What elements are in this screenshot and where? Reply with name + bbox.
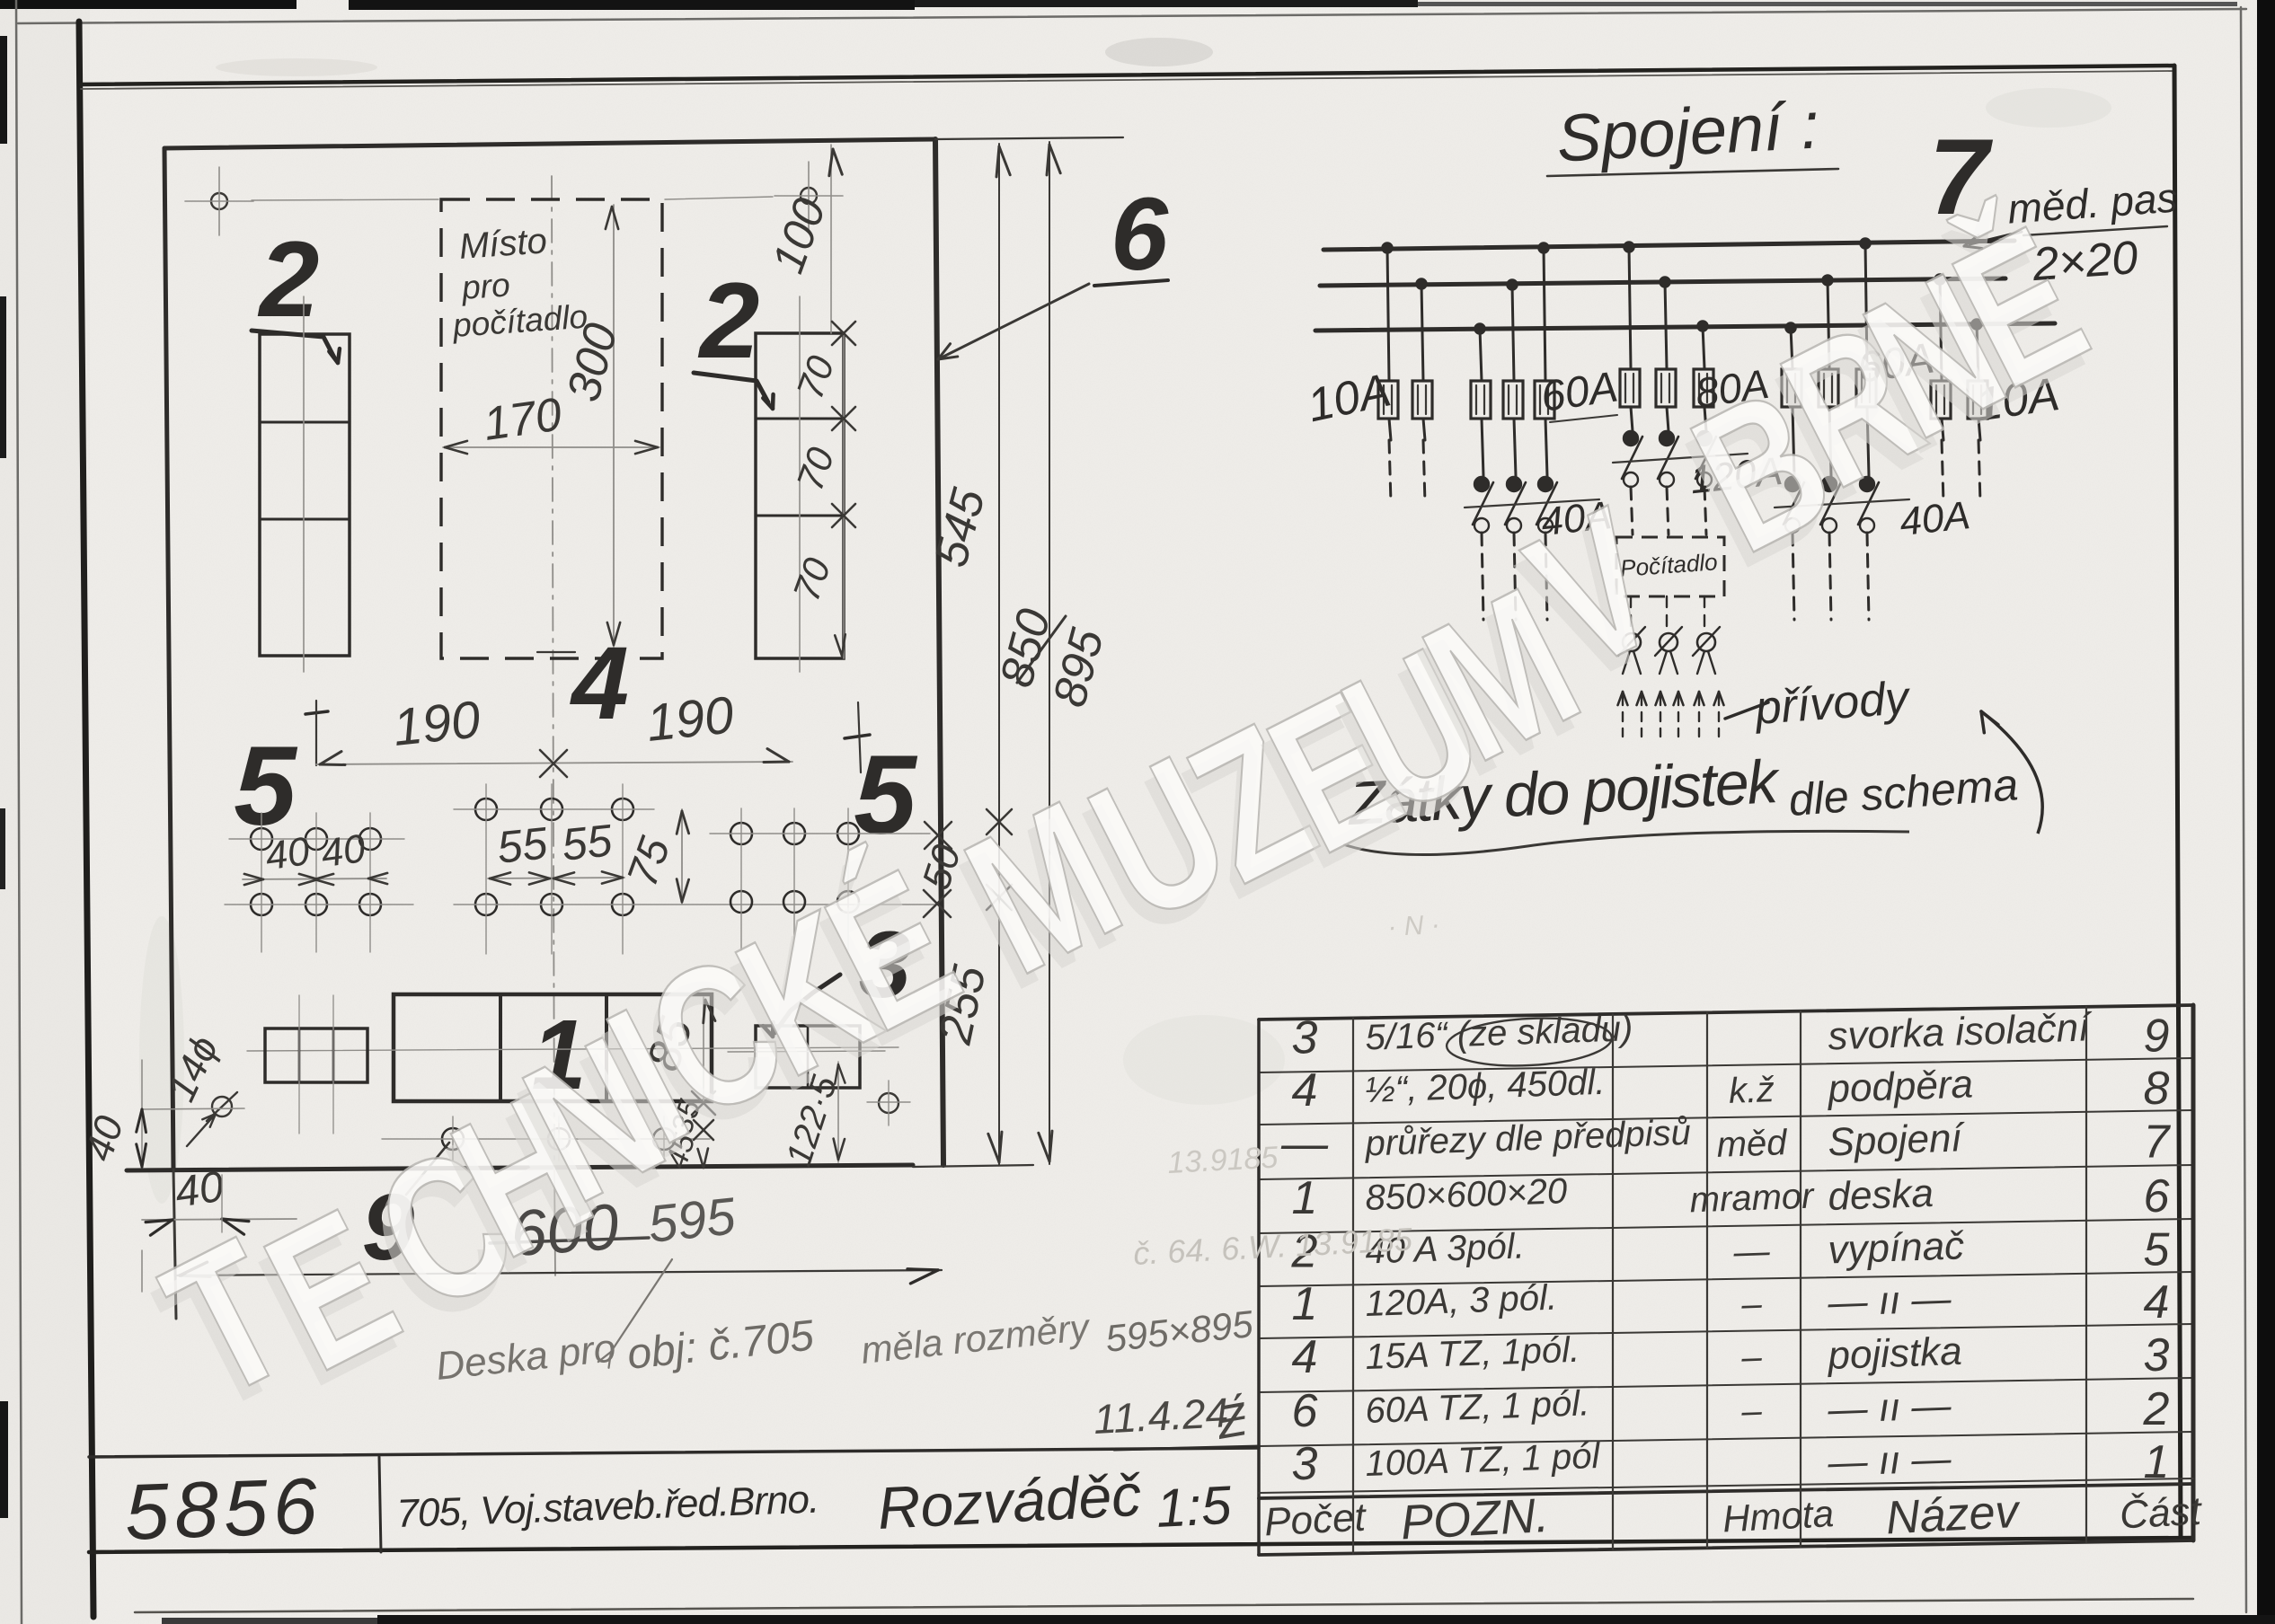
svg-text:850×600×20: 850×600×20 xyxy=(1365,1171,1568,1218)
svg-text:3: 3 xyxy=(1292,1012,1318,1064)
svg-text:170: 170 xyxy=(481,388,565,451)
svg-text:6: 6 xyxy=(1292,1385,1318,1437)
svg-text:15A TZ, 1pól.: 15A TZ, 1pól. xyxy=(1365,1330,1580,1377)
svg-text:—: — xyxy=(1732,1231,1772,1272)
svg-text:55: 55 xyxy=(560,815,615,870)
svg-text:2: 2 xyxy=(698,260,760,381)
svg-text:1: 1 xyxy=(2144,1436,2170,1488)
svg-text:–: – xyxy=(1740,1391,1764,1432)
svg-text:— ıı —: — ıı — xyxy=(1827,1436,1953,1485)
svg-text:–: – xyxy=(1740,1284,1764,1325)
svg-text:4: 4 xyxy=(1292,1331,1318,1383)
svg-text:—: — xyxy=(1280,1118,1329,1170)
svg-text:pojistka: pojistka xyxy=(1826,1329,1963,1378)
svg-text:svorka isolační: svorka isolační xyxy=(1828,1005,2094,1058)
svg-text:100A TZ, 1 pól: 100A TZ, 1 pól xyxy=(1365,1436,1601,1484)
svg-text:k.ž: k.ž xyxy=(1728,1070,1775,1111)
svg-text:Počet: Počet xyxy=(1263,1496,1368,1545)
svg-text:120A, 3 pól.: 120A, 3 pól. xyxy=(1365,1278,1558,1324)
svg-text:deska: deska xyxy=(1828,1171,1934,1219)
svg-text:8: 8 xyxy=(2144,1063,2170,1115)
svg-text:— ıı —: — ıı — xyxy=(1827,1383,1953,1432)
svg-text:1: 1 xyxy=(1292,1172,1318,1224)
svg-text:POZN.: POZN. xyxy=(1399,1488,1550,1550)
svg-text:měd: měd xyxy=(1716,1123,1789,1165)
svg-text:Místo: Místo xyxy=(458,221,549,267)
svg-text:3: 3 xyxy=(1292,1438,1318,1490)
svg-text:7: 7 xyxy=(2144,1116,2172,1169)
svg-text:11.4.24: 11.4.24 xyxy=(1093,1389,1230,1443)
svg-text:190: 190 xyxy=(643,685,736,753)
svg-text:13.9185: 13.9185 xyxy=(1166,1141,1279,1180)
svg-text:190: 190 xyxy=(390,690,482,757)
svg-text:· N ·: · N · xyxy=(1387,910,1441,942)
svg-text:40: 40 xyxy=(318,826,368,876)
svg-text:4: 4 xyxy=(1292,1064,1318,1116)
svg-text:Spojení: Spojení xyxy=(1828,1116,1967,1164)
svg-text:60A TZ, 1 pól.: 60A TZ, 1 pól. xyxy=(1365,1383,1590,1431)
svg-text:2: 2 xyxy=(258,219,320,340)
svg-text:55: 55 xyxy=(495,817,550,873)
svg-text:6: 6 xyxy=(2144,1170,2170,1222)
svg-text:podpěra: podpěra xyxy=(1826,1062,1974,1111)
svg-text:1:5: 1:5 xyxy=(1155,1475,1233,1539)
svg-text:Název: Název xyxy=(1885,1486,2023,1545)
svg-text:Hmota: Hmota xyxy=(1722,1492,1835,1540)
svg-text:1: 1 xyxy=(1292,1278,1318,1330)
svg-text:Část: Část xyxy=(2119,1488,2204,1538)
svg-text:mramor: mramor xyxy=(1689,1177,1816,1221)
svg-text:2: 2 xyxy=(2143,1383,2170,1435)
svg-text:40: 40 xyxy=(262,829,313,878)
svg-text:pro: pro xyxy=(460,266,511,306)
svg-text:vypínač: vypínač xyxy=(1828,1223,1965,1272)
svg-text:— ıı —: — ıı — xyxy=(1827,1276,1953,1325)
svg-text:½“, 20ϕ, 450dl.: ½“, 20ϕ, 450dl. xyxy=(1365,1063,1606,1110)
svg-text:6: 6 xyxy=(1111,177,1169,292)
svg-text:5: 5 xyxy=(2144,1224,2171,1276)
svg-text:4: 4 xyxy=(570,626,629,741)
svg-text:přívody: přívody xyxy=(1752,672,1913,735)
svg-text:–: – xyxy=(1740,1337,1764,1378)
svg-text:3: 3 xyxy=(2144,1329,2170,1381)
svg-text:5856: 5856 xyxy=(123,1461,323,1557)
svg-text:9: 9 xyxy=(2144,1011,2170,1063)
svg-text:4: 4 xyxy=(2144,1276,2170,1328)
svg-text:Spojení :: Spojení : xyxy=(1555,87,1821,175)
svg-text:Rozváděč: Rozváděč xyxy=(876,1461,1143,1541)
